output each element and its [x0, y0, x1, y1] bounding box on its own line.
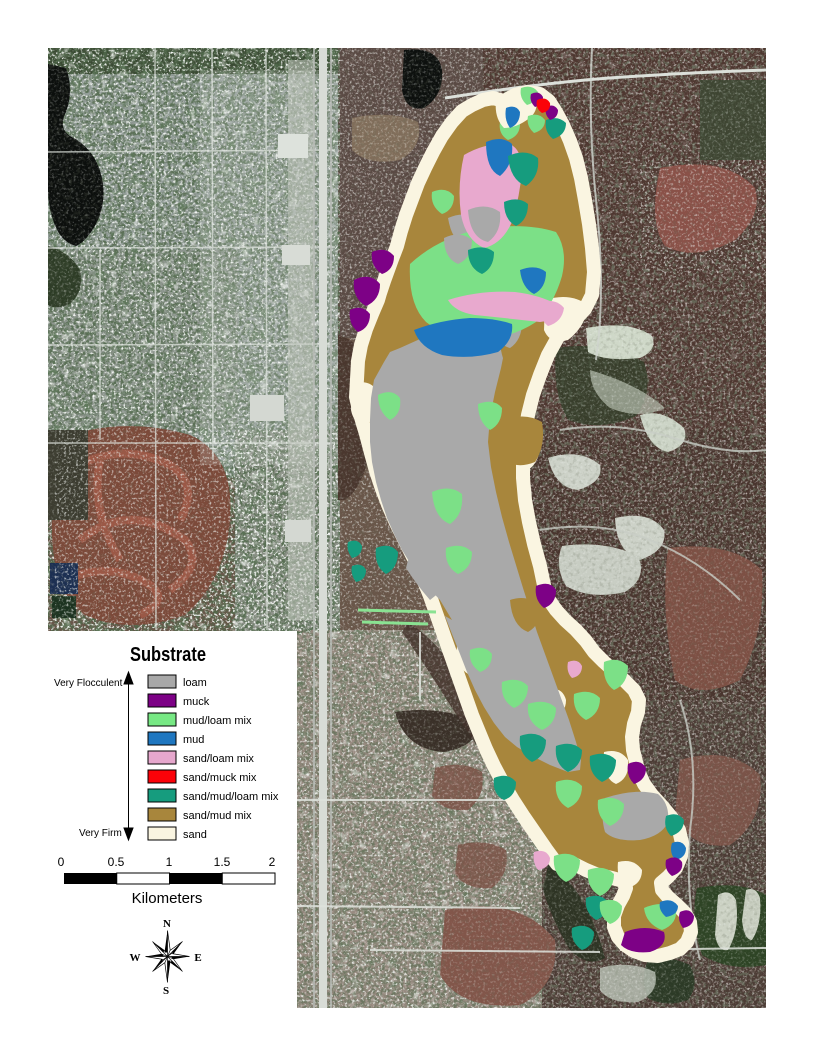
svg-text:Very Flocculent: Very Flocculent	[54, 678, 123, 689]
svg-text:mud/loam mix: mud/loam mix	[183, 715, 252, 727]
svg-text:mud: mud	[183, 734, 204, 746]
svg-text:sand: sand	[183, 829, 207, 841]
svg-text:W: W	[130, 952, 141, 964]
svg-text:2: 2	[269, 855, 276, 869]
svg-text:sand/loam mix: sand/loam mix	[183, 753, 254, 765]
svg-text:S: S	[163, 985, 169, 997]
svg-text:sand/muck mix: sand/muck mix	[183, 772, 257, 784]
svg-text:sand/mud/loam mix: sand/mud/loam mix	[183, 791, 279, 803]
svg-text:N: N	[163, 918, 171, 930]
svg-text:Kilometers: Kilometers	[132, 890, 203, 907]
svg-text:1: 1	[166, 855, 173, 869]
svg-text:sand/mud mix: sand/mud mix	[183, 810, 252, 822]
svg-text:0: 0	[58, 855, 65, 869]
svg-text:E: E	[194, 952, 201, 964]
svg-text:0.5: 0.5	[108, 855, 125, 869]
svg-text:1.5: 1.5	[214, 855, 231, 869]
svg-text:muck: muck	[183, 696, 210, 708]
svg-text:loam: loam	[183, 677, 207, 689]
svg-text:Very Firm: Very Firm	[79, 828, 122, 839]
svg-text:Substrate: Substrate	[130, 644, 206, 666]
